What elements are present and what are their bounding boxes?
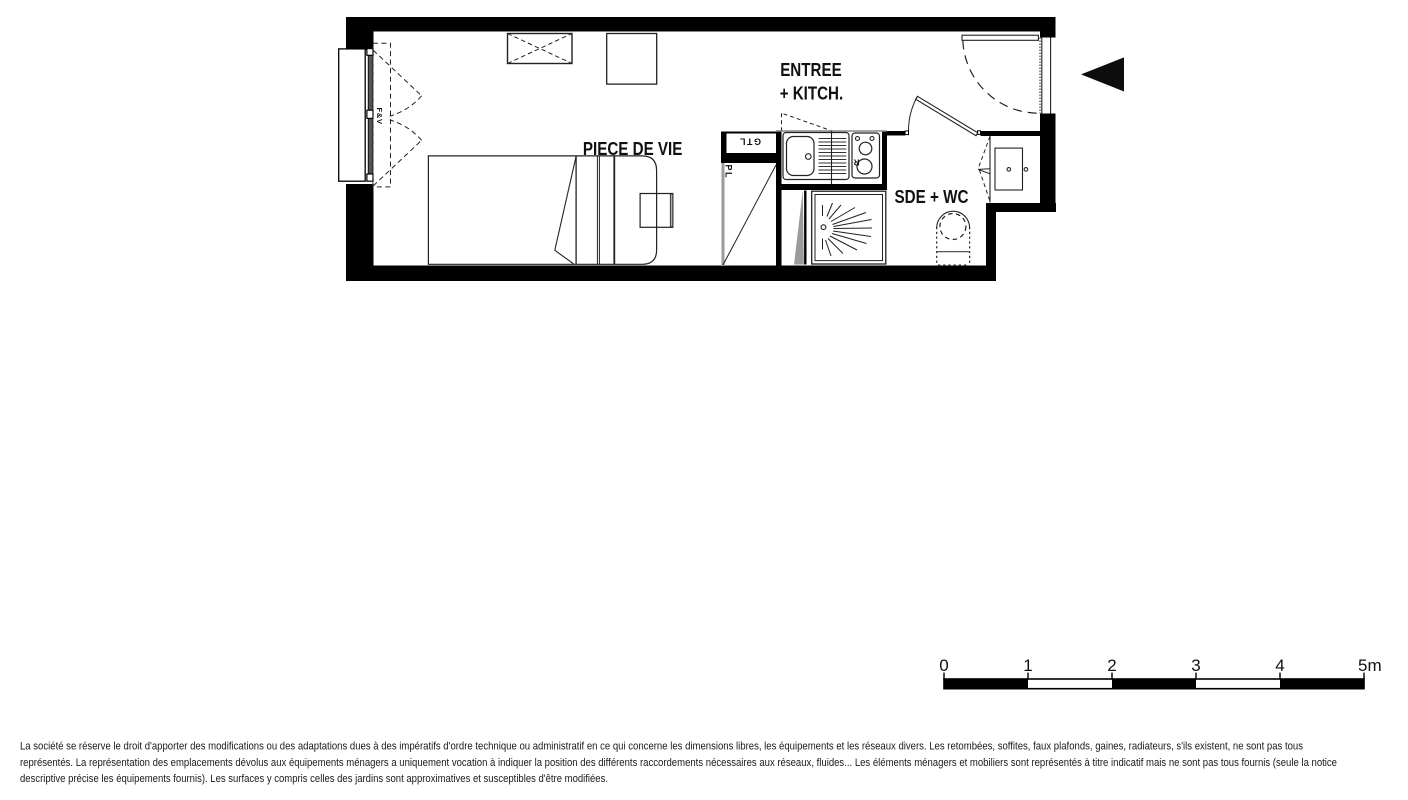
- svg-text:2: 2: [1107, 656, 1116, 675]
- svg-text:F&V: F&V: [375, 108, 384, 125]
- svg-text:3: 3: [1191, 656, 1200, 675]
- svg-text:ENTREE: ENTREE: [780, 59, 842, 80]
- svg-text:GTL: GTL: [740, 137, 762, 147]
- svg-text:5m: 5m: [1358, 656, 1382, 675]
- svg-text:0: 0: [939, 656, 948, 675]
- svg-text:1: 1: [1023, 656, 1032, 675]
- svg-text:PL: PL: [724, 165, 734, 179]
- svg-text:descriptive précise les équipe: descriptive précise les équipements four…: [20, 773, 608, 785]
- svg-text:4: 4: [1275, 656, 1284, 675]
- svg-text:PIECE DE VIE: PIECE DE VIE: [583, 138, 683, 159]
- svg-text:représentés. La représentation: représentés. La représentation des empla…: [20, 757, 1337, 769]
- svg-text:SDE + WC: SDE + WC: [895, 186, 969, 207]
- svg-text:+ KITCH.: + KITCH.: [780, 82, 844, 103]
- svg-text:R: R: [854, 158, 860, 167]
- svg-text:La société se réserve le droit: La société se réserve le droit d'apporte…: [20, 741, 1304, 753]
